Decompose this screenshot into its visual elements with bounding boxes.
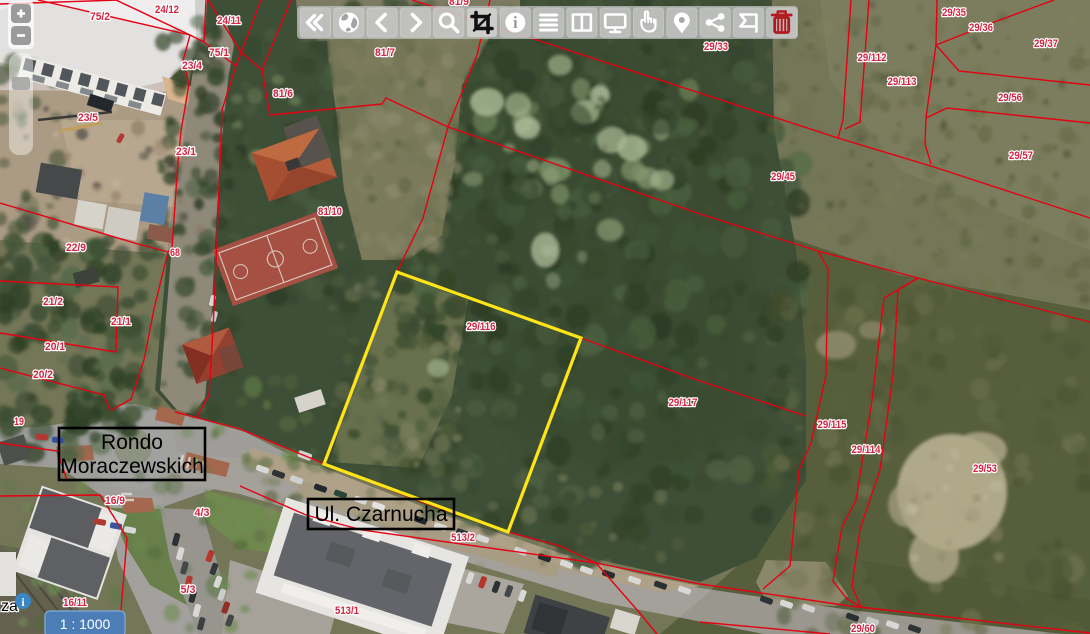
svg-text:Moraczewskich: Moraczewskich — [60, 455, 204, 478]
svg-text:29/53: 29/53 — [973, 463, 997, 475]
svg-text:29/57: 29/57 — [1009, 150, 1033, 162]
svg-text:29/112: 29/112 — [858, 52, 887, 64]
svg-text:29/60: 29/60 — [851, 623, 875, 634]
svg-text:29/36: 29/36 — [969, 22, 993, 34]
svg-text:81/10: 81/10 — [318, 206, 342, 218]
svg-text:29/113: 29/113 — [888, 76, 917, 88]
svg-text:29/45: 29/45 — [771, 171, 795, 183]
svg-text:29/56: 29/56 — [998, 92, 1022, 104]
svg-text:75/1: 75/1 — [209, 47, 229, 59]
svg-text:29/115: 29/115 — [818, 419, 847, 431]
svg-text:23/5: 23/5 — [78, 112, 98, 124]
svg-text:20/1: 20/1 — [45, 341, 65, 353]
svg-text:29/37: 29/37 — [1034, 38, 1058, 50]
svg-text:24/11: 24/11 — [217, 15, 241, 27]
svg-text:Ul. Czarnucha: Ul. Czarnucha — [314, 503, 447, 526]
svg-text:16/9: 16/9 — [105, 495, 125, 507]
svg-text:513/1: 513/1 — [335, 605, 359, 617]
svg-text:23/1: 23/1 — [176, 146, 196, 158]
svg-text:19: 19 — [14, 416, 24, 428]
svg-text:29/33: 29/33 — [704, 41, 728, 53]
svg-text:29/116: 29/116 — [467, 321, 496, 333]
svg-text:21/1: 21/1 — [111, 316, 131, 328]
svg-text:29/114: 29/114 — [852, 444, 882, 456]
svg-text:4/3: 4/3 — [195, 507, 210, 519]
svg-text:68: 68 — [170, 247, 180, 259]
svg-text:16/11: 16/11 — [63, 597, 87, 609]
svg-text:81/6: 81/6 — [273, 88, 293, 100]
svg-text:Rondo: Rondo — [101, 431, 163, 454]
svg-text:29/117: 29/117 — [669, 397, 698, 409]
svg-text:24/12: 24/12 — [155, 4, 179, 16]
svg-text:81/7: 81/7 — [375, 47, 395, 59]
svg-text:75/2: 75/2 — [90, 11, 110, 23]
svg-text:20/2: 20/2 — [33, 369, 53, 381]
svg-text:23/4: 23/4 — [182, 60, 203, 72]
svg-text:i: i — [513, 13, 518, 32]
svg-text:29/35: 29/35 — [942, 7, 966, 19]
svg-text:21/2: 21/2 — [43, 296, 63, 308]
svg-text:22/9: 22/9 — [66, 242, 86, 254]
svg-text:513/2: 513/2 — [451, 532, 475, 544]
svg-text:5/3: 5/3 — [181, 584, 196, 596]
svg-text:1 : 1000: 1 : 1000 — [60, 616, 111, 632]
